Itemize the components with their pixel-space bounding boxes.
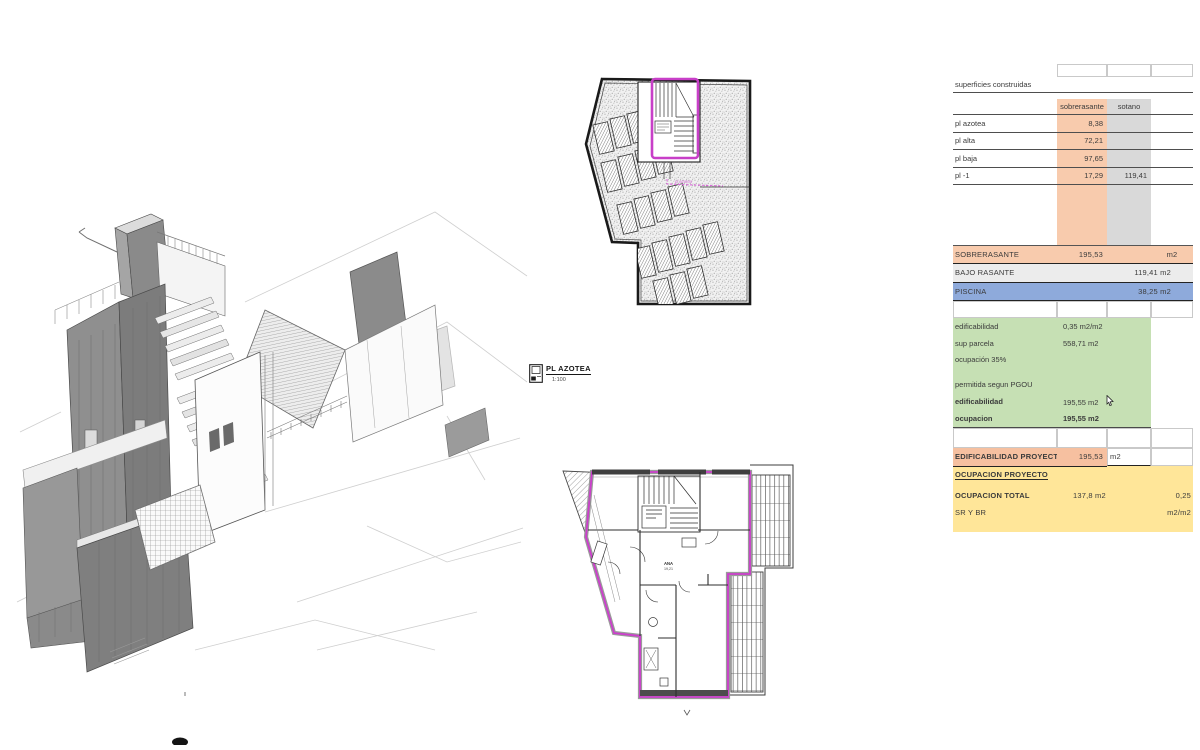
col-header-sotano: sotano [1107,99,1151,114]
row-label: pl -1 [953,172,1057,180]
total-label: PISCINA [953,288,1057,296]
proj-value: 137,8 m2 [1057,492,1151,500]
total-value: 195,53 [1057,251,1107,259]
cursor-icon [1106,395,1114,406]
norm-label: edificabilidad [953,323,1057,331]
upper-deck [157,232,225,316]
proj-value: 195,53 [1079,453,1107,461]
proj-unit: m2 [1108,453,1121,461]
table-row-pl-alta: pl alta 72,21 [953,133,1193,151]
sheet-mark [172,738,188,746]
plan-legend: PL AZOTEA 1:100 [529,364,591,383]
legend-title: PL AZOTEA [546,364,591,375]
plan-key-icon [529,364,543,383]
norm-label: sup parcela [953,340,1057,348]
proj-label: SR Y BR [953,506,1057,517]
svg-text:19,21: 19,21 [664,567,673,571]
norm-value: 558,71 m2 [1057,340,1151,348]
legend-scale: 1:100 [546,377,591,383]
table-row-title: superficies construidas [953,77,1193,93]
table-row-bajo-rasante: BAJO RASANTE 119,41 m2 [953,264,1193,283]
row-label: pl baja [953,155,1057,163]
proj-unit: m2/m2 [1151,506,1193,517]
table-row-sr-br: SR Y BR m2/m2 [953,506,1193,532]
norm-label: permitida segun PGOU [953,381,1057,389]
table-row-empty [953,301,1193,318]
row-value-sotano [1107,115,1151,132]
row-value-sobre: 17,29 [1057,168,1107,185]
proj-label: OCUPACION TOTAL [953,492,1057,500]
svg-text:ANA: ANA [664,561,673,566]
roof-plan: pl azotea [580,65,765,315]
norm-value: 0,35 m2/m2 [1057,323,1151,331]
row-value-sobre: 97,65 [1057,150,1107,167]
norm-label: edificabilidad [953,398,1057,406]
total-unit: m2 [1151,251,1193,259]
table-row-sobrerasante: SOBRERASANTE 195,53 m2 [953,245,1193,264]
proj-label: OCUPACION PROYECTO [955,471,1048,481]
norm-value: 195,55 m2 [1063,398,1098,407]
areas-table: superficies construidas sobrerasante sot… [953,64,1193,532]
norm-value: 195,55 m2 [1057,415,1151,423]
col-header-sobrerasante: sobrerasante [1057,99,1107,114]
row-value-sotano [1107,133,1151,150]
row-value-sotano [1107,150,1151,167]
table-row-empty-top [953,64,1193,77]
proj-label: EDIFICABILIDAD PROYECTO [953,453,1064,461]
table-row-ocup-proyecto: OCUPACION PROYECTO [953,466,1193,485]
norm-label: ocupacion [953,415,1057,423]
table-row-pl-baja: pl baja 97,65 [953,150,1193,168]
axonometric-3d-view [15,180,530,745]
total-label: BAJO RASANTE [953,269,1057,277]
stair-core [638,79,700,162]
table-normativa-block: edificabilidad 0,35 m2/m2 sup parcela 55… [953,318,1151,428]
row-value-sobre: 72,21 [1057,133,1107,150]
drawing-sheet: pl azotea PL AZOTEA 1:100 [0,0,1200,750]
proj-ratio: 0,25 [1151,492,1193,500]
norm-label: ocupación 35% [953,356,1057,364]
table-row-pl-menos1: pl -1 17,29 119,41 [953,168,1193,186]
row-value-sotano: 119,41 [1107,168,1151,185]
table-row-edif-proyecto: EDIFICABILIDAD PROYECTO 195,53 m2 [953,448,1193,466]
table-row-headers: sobrerasante sotano [953,99,1193,115]
table-row-piscina: PISCINA 38,25 m2 [953,283,1193,301]
total-value: 38,25 m2 [1107,288,1193,296]
table-band-spacer [953,185,1193,245]
table-row-pl-azotea: pl azotea 8,38 [953,115,1193,133]
total-label: SOBRERASANTE [953,251,1057,259]
antenna [79,228,117,252]
roof-annotation-label: pl azotea [674,179,693,184]
table-title: superficies construidas [953,81,1057,89]
table-row-empty [953,428,1193,448]
floor-plan: ANA 19,21 [558,452,803,720]
table-row-ocup-total: OCUPACION TOTAL 137,8 m2 0,25 [953,485,1193,506]
row-value-sobre: 8,38 [1057,115,1107,132]
terrace-lattice-lower [731,572,763,692]
total-value: 119,41 m2 [1107,269,1193,277]
terrace-lattice-upper [752,475,790,566]
row-label: pl azotea [953,120,1057,128]
row-label: pl alta [953,137,1057,145]
